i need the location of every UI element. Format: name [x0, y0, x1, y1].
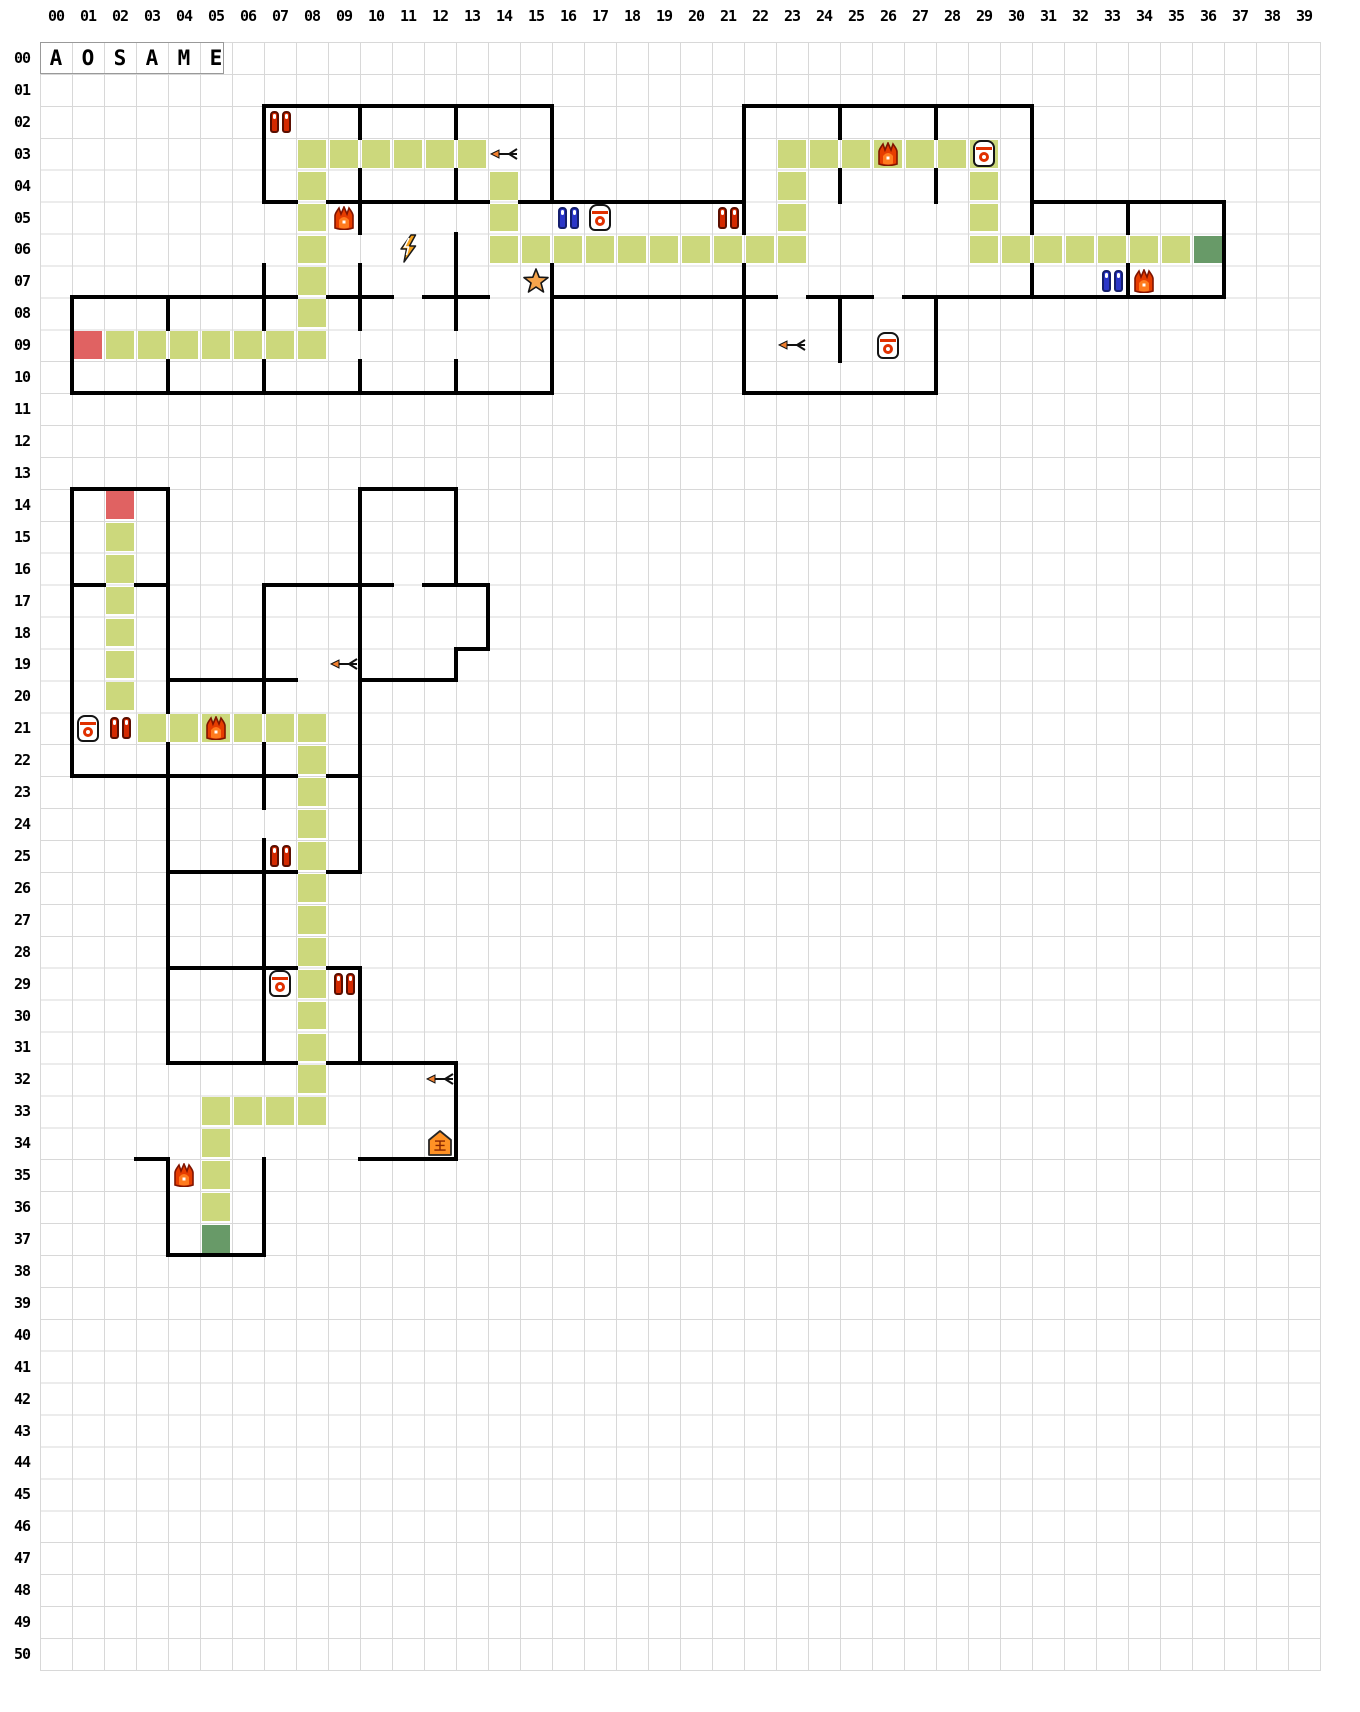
path-cell[interactable] — [298, 267, 326, 295]
wall-segment — [70, 295, 74, 395]
path-cell[interactable] — [170, 714, 198, 742]
wall-segment — [454, 647, 490, 651]
arrow-key-icon — [330, 657, 358, 671]
wall-segment — [838, 295, 842, 363]
path-cell[interactable] — [266, 331, 294, 359]
path-cell[interactable] — [202, 1097, 230, 1125]
path-cell[interactable] — [298, 204, 326, 232]
arrow-key-icon — [426, 1072, 454, 1086]
wall-segment — [934, 295, 938, 395]
name-plate-letter: E — [210, 46, 223, 70]
arrow-key-icon — [490, 147, 518, 161]
path-cell[interactable] — [714, 236, 742, 264]
star-cell[interactable] — [520, 265, 552, 297]
house-cell[interactable]: 王 — [424, 1127, 456, 1159]
bell-cell[interactable] — [584, 202, 616, 234]
map-viewer-screen: 0001020304050607080910111213141516171819… — [0, 0, 1360, 1712]
start-cell[interactable] — [106, 491, 134, 519]
path-cell[interactable] — [298, 714, 326, 742]
wall-segment — [454, 359, 458, 395]
arrow-cell[interactable] — [424, 1063, 456, 1095]
path-cell[interactable] — [586, 236, 614, 264]
wall-segment — [838, 168, 842, 204]
flame-icon — [877, 142, 899, 166]
path-cell[interactable] — [426, 140, 454, 168]
path-cell[interactable] — [906, 140, 934, 168]
path-cell[interactable] — [1098, 236, 1126, 264]
red-pair-cell[interactable] — [712, 202, 744, 234]
path-cell[interactable] — [170, 331, 198, 359]
path-cell[interactable] — [298, 172, 326, 200]
red-pair-cell[interactable] — [264, 106, 296, 138]
red-pair-cell[interactable] — [264, 840, 296, 872]
house-icon: 王 — [428, 1130, 452, 1156]
wall-segment — [454, 647, 458, 683]
arrow-cell[interactable] — [488, 138, 520, 170]
bell-cell[interactable] — [72, 712, 104, 744]
bell-cell[interactable] — [968, 138, 1000, 170]
path-cell[interactable] — [1130, 236, 1158, 264]
path-cell[interactable] — [298, 1097, 326, 1125]
wall-segment — [838, 104, 842, 140]
wall-segment — [1030, 263, 1034, 299]
path-cell[interactable] — [778, 236, 806, 264]
name-plate-letter: O — [82, 46, 95, 70]
lightning-cell[interactable] — [392, 234, 424, 266]
name-plate-letter: S — [114, 46, 127, 70]
path-cell[interactable] — [298, 331, 326, 359]
path-cell[interactable] — [490, 204, 518, 232]
wall-segment — [486, 583, 490, 651]
path-cell[interactable] — [298, 842, 326, 870]
blue-pair-cell[interactable] — [1096, 265, 1128, 297]
red-pair-icon — [270, 845, 291, 867]
wall-segment — [358, 678, 458, 682]
path-cell[interactable] — [970, 236, 998, 264]
path-cell[interactable] — [106, 555, 134, 583]
path-cell[interactable] — [362, 140, 390, 168]
wall-segment — [742, 104, 1034, 108]
wall-segment — [454, 487, 458, 587]
bell-icon — [973, 140, 995, 167]
path-cell[interactable] — [106, 619, 134, 647]
wall-segment — [262, 359, 266, 395]
bell-icon — [589, 204, 611, 231]
path-cell[interactable] — [778, 204, 806, 232]
red-pair-icon — [334, 973, 355, 995]
wall-segment — [742, 263, 746, 395]
name-plate-letter: A — [146, 46, 159, 70]
path-cell[interactable] — [1162, 236, 1190, 264]
red-pair-icon — [270, 111, 291, 133]
flame-icon — [173, 1163, 195, 1187]
path-cell[interactable] — [458, 140, 486, 168]
path-cell[interactable] — [490, 172, 518, 200]
arrow-cell[interactable] — [328, 649, 360, 681]
wall-segment — [358, 487, 458, 491]
path-cell[interactable] — [202, 331, 230, 359]
name-plate-letter: M — [178, 46, 191, 70]
path-cell[interactable] — [682, 236, 710, 264]
path-cell[interactable] — [298, 236, 326, 264]
path-cell[interactable] — [138, 714, 166, 742]
flame-icon — [1133, 269, 1155, 293]
lightning-icon — [398, 234, 418, 264]
wall-segment — [358, 263, 362, 331]
arrow-cell[interactable] — [776, 329, 808, 361]
wall-segment — [166, 1253, 266, 1257]
name-plate-letter: A — [50, 46, 63, 70]
path-cell[interactable] — [202, 1193, 230, 1221]
path-cell[interactable] — [298, 938, 326, 966]
red-pair-icon — [718, 207, 739, 229]
blue-pair-icon — [558, 207, 579, 229]
path-cell[interactable] — [554, 236, 582, 264]
wall-segment — [262, 583, 394, 587]
path-cell[interactable] — [106, 587, 134, 615]
wall-segment — [934, 168, 938, 204]
wall-segment — [454, 232, 458, 332]
wall-segment — [454, 168, 458, 204]
path-cell[interactable] — [298, 906, 326, 934]
svg-text:王: 王 — [434, 1139, 446, 1153]
path-cell[interactable] — [138, 331, 166, 359]
flame-cell[interactable] — [168, 1159, 200, 1191]
flame-icon — [205, 716, 227, 740]
path-cell[interactable] — [970, 172, 998, 200]
path-cell[interactable] — [298, 1002, 326, 1030]
path-cell[interactable] — [778, 140, 806, 168]
wall-segment — [902, 295, 1226, 299]
wall-segment — [358, 104, 362, 140]
wall-segment — [1030, 104, 1034, 236]
path-cell[interactable] — [202, 1161, 230, 1189]
path-cell[interactable] — [394, 140, 422, 168]
path-cell[interactable] — [266, 1097, 294, 1125]
wall-segment — [262, 263, 266, 331]
path-cell[interactable] — [1034, 236, 1062, 264]
wall-segment — [166, 678, 298, 682]
goal-cell[interactable] — [1194, 236, 1222, 264]
wall-segment — [166, 295, 170, 331]
red-pair-icon — [110, 717, 131, 739]
wall-segment — [934, 104, 938, 140]
wall-segment — [134, 583, 170, 587]
path-cell[interactable] — [1002, 236, 1030, 264]
path-cell[interactable] — [298, 299, 326, 327]
path-cell[interactable] — [522, 236, 550, 264]
path-cell[interactable] — [298, 970, 326, 998]
wall-segment — [358, 487, 362, 874]
path-cell[interactable] — [106, 682, 134, 710]
flame-cell[interactable] — [872, 138, 904, 170]
bell-icon — [269, 970, 291, 997]
path-cell[interactable] — [778, 172, 806, 200]
path-cell[interactable] — [298, 1065, 326, 1093]
wall-segment — [550, 104, 554, 204]
path-cell[interactable] — [298, 140, 326, 168]
star-icon — [523, 268, 549, 294]
path-cell[interactable] — [810, 140, 838, 168]
goal-cell[interactable] — [202, 1225, 230, 1253]
wall-segment — [262, 838, 266, 1065]
bell-cell[interactable] — [872, 329, 904, 361]
path-cell[interactable] — [938, 140, 966, 168]
wall-segment — [262, 742, 266, 810]
wall-segment — [70, 487, 170, 491]
wall-segment — [166, 1061, 298, 1065]
wall-segment — [262, 1157, 266, 1257]
wall-segment — [166, 359, 170, 395]
wall-segment — [262, 104, 554, 108]
path-cell[interactable] — [298, 874, 326, 902]
start-cell[interactable] — [74, 331, 102, 359]
wall-segment — [358, 359, 362, 395]
wall-segment — [166, 487, 170, 714]
map-canvas[interactable]: AOSAME — [0, 0, 1360, 1712]
wall-segment — [326, 774, 362, 778]
path-cell[interactable] — [298, 778, 326, 806]
path-cell[interactable] — [1066, 236, 1094, 264]
path-cell[interactable] — [234, 1097, 262, 1125]
wall-segment — [70, 583, 106, 587]
wall-segment — [262, 583, 266, 715]
flame-cell[interactable] — [1128, 265, 1160, 297]
flame-icon — [333, 206, 355, 230]
wall-segment — [454, 104, 458, 140]
wall-segment — [70, 391, 554, 395]
name-plate-box — [40, 42, 224, 74]
path-cell[interactable] — [234, 714, 262, 742]
wall-segment — [166, 742, 170, 1065]
path-cell[interactable] — [618, 236, 646, 264]
wall-segment — [262, 200, 298, 204]
path-cell[interactable] — [106, 651, 134, 679]
bell-icon — [77, 715, 99, 742]
blue-pair-icon — [1102, 270, 1123, 292]
flame-cell[interactable] — [200, 712, 232, 744]
red-pair-cell[interactable] — [328, 968, 360, 1000]
path-cell[interactable] — [650, 236, 678, 264]
wall-segment — [134, 1157, 170, 1161]
bell-icon — [877, 332, 899, 359]
blue-pair-cell[interactable] — [552, 202, 584, 234]
path-cell[interactable] — [842, 140, 870, 168]
path-cell[interactable] — [298, 746, 326, 774]
path-cell[interactable] — [106, 331, 134, 359]
wall-segment — [1222, 200, 1226, 300]
wall-segment — [1126, 200, 1130, 236]
path-cell[interactable] — [202, 1129, 230, 1157]
path-cell[interactable] — [234, 331, 262, 359]
flame-cell[interactable] — [328, 202, 360, 234]
path-cell[interactable] — [330, 140, 358, 168]
wall-segment — [742, 391, 938, 395]
bell-cell[interactable] — [264, 968, 296, 1000]
wall-segment — [326, 870, 362, 874]
path-cell[interactable] — [298, 810, 326, 838]
arrow-key-icon — [778, 338, 806, 352]
path-cell[interactable] — [490, 236, 518, 264]
path-cell[interactable] — [266, 714, 294, 742]
path-cell[interactable] — [298, 1034, 326, 1062]
path-cell[interactable] — [106, 523, 134, 551]
path-cell[interactable] — [746, 236, 774, 264]
path-cell[interactable] — [970, 204, 998, 232]
red-pair-cell[interactable] — [104, 712, 136, 744]
